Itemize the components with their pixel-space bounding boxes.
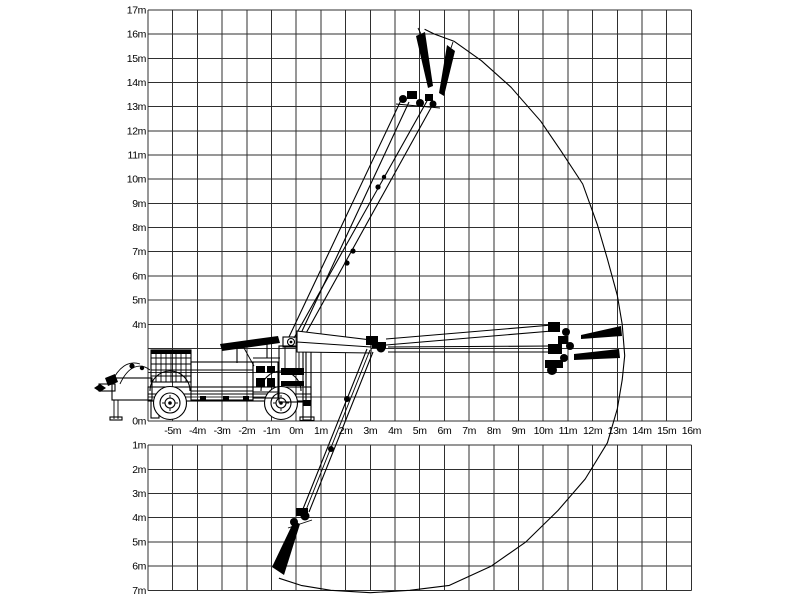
x-axis-label: 7m [462, 425, 476, 437]
y-axis-label: 16m [127, 29, 147, 41]
y-axis-origin-label: 0m [132, 416, 146, 428]
y-axis-label: 13m [127, 101, 147, 113]
x-axis-label: 4m [388, 425, 402, 437]
working-range-diagram: -5m-4m-3m-2m-1m0m1m2m3m4m5m6m7m8m9m10m11… [0, 0, 800, 600]
x-axis-label: 0m [289, 425, 303, 437]
y-axis-below-label: 5m [132, 536, 146, 548]
y-axis-label: 6m [132, 270, 146, 282]
x-axis-label: 9m [512, 425, 526, 437]
spray-nozzle-right-1 [581, 326, 622, 339]
x-axis-label: -5m [164, 425, 182, 437]
y-axis-label: 9m [132, 198, 146, 210]
y-axis-below-label: 4m [132, 512, 146, 524]
y-axis-label: 5m [132, 295, 146, 307]
y-axis-label: 4m [132, 319, 146, 331]
spray-nozzle-up-1 [416, 32, 433, 88]
x-axis-label: 12m [583, 425, 603, 437]
front-support-leg [303, 346, 311, 420]
front-wheel [265, 387, 298, 420]
y-axis-below-label: 1m [132, 440, 146, 452]
y-axis-label: 11m [128, 150, 147, 162]
boom-position-raised [289, 28, 455, 344]
x-axis-label: 3m [363, 425, 377, 437]
x-axis-label: -1m [263, 425, 281, 437]
grid [148, 10, 691, 590]
y-axis-below-label: 6m [132, 561, 146, 573]
y-axis-label: 12m [127, 125, 147, 137]
y-axis-below-label: 2m [132, 464, 146, 476]
reach-envelope-curve [279, 29, 625, 592]
y-axis-below-label: 7m [132, 585, 146, 597]
x-axis-label: 16m [682, 425, 702, 437]
x-axis-label: -2m [238, 425, 256, 437]
y-axis-label: 15m [127, 53, 147, 65]
x-axis-label: -3m [214, 425, 232, 437]
x-axis-label: 14m [632, 425, 652, 437]
spray-nozzle-up-2 [439, 45, 455, 96]
pump-assembly [94, 363, 152, 420]
x-axis-label: 8m [487, 425, 501, 437]
x-axis-label: 6m [438, 425, 452, 437]
x-axis-label: -4m [189, 425, 207, 437]
y-axis-label: 17m [127, 4, 147, 16]
x-axis-label: 11m [559, 425, 578, 437]
boom-wrist-top [396, 91, 440, 108]
x-axis-label: 10m [534, 425, 554, 437]
y-axis-label: 10m [127, 174, 147, 186]
x-axis-label: 15m [657, 425, 677, 437]
y-axis-label: 8m [132, 222, 146, 234]
rear-wheel [154, 387, 187, 420]
x-axis-label: 5m [413, 425, 427, 437]
y-axis-label: 14m [127, 77, 147, 89]
y-axis-below-label: 3m [132, 488, 146, 500]
spray-nozzle-right-2 [574, 349, 620, 360]
y-axis-label: 7m [132, 246, 146, 258]
x-axis-label: 1m [314, 425, 328, 437]
